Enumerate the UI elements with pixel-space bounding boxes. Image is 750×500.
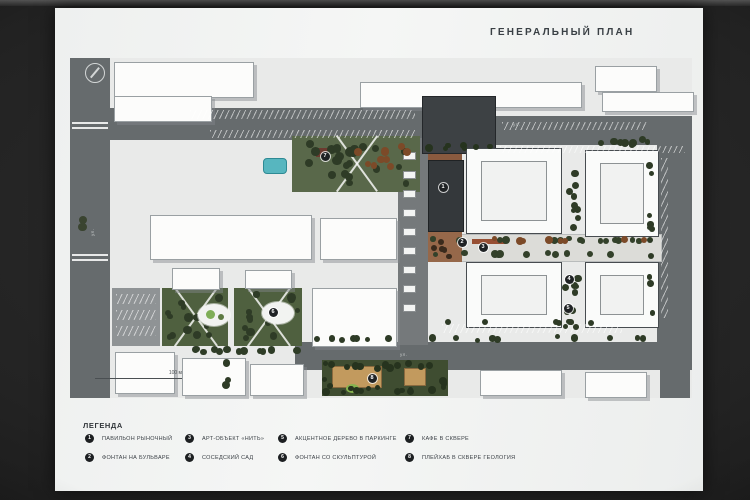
tree	[649, 226, 655, 232]
parking-garage-building	[422, 96, 496, 154]
legend-number-badge: 8	[405, 453, 414, 462]
tree	[571, 193, 578, 200]
context-building	[150, 215, 312, 260]
road-label-bottom: ул.	[400, 352, 408, 357]
tree	[382, 361, 390, 369]
tree	[580, 238, 585, 243]
tree	[453, 335, 459, 341]
screen-bezel-highlight	[0, 0, 750, 6]
tree	[446, 254, 451, 259]
tree	[383, 156, 390, 163]
scale-label: 100 м	[169, 370, 182, 376]
tree	[178, 300, 185, 307]
page-title: ГЕНЕРАЛЬНЫЙ ПЛАН	[490, 27, 634, 38]
legend-item-8: 8ПЛЕЙХАБ В СКВЕРЕ ГЕОЛОГИЯ	[405, 453, 515, 462]
tree	[570, 224, 577, 231]
courtyard	[600, 275, 644, 315]
tree	[430, 236, 436, 242]
legend-number-badge: 6	[278, 453, 287, 462]
legend-item-label: АКЦЕНТНОЕ ДЕРЕВО В ПАРКИНГЕ	[295, 436, 397, 442]
context-building	[320, 218, 397, 260]
parked-car	[403, 209, 416, 217]
tree	[648, 253, 654, 259]
tree	[350, 335, 357, 342]
map-marker-1: 1	[439, 183, 448, 192]
context-building	[602, 92, 694, 112]
tree	[268, 346, 276, 354]
tree	[215, 294, 222, 301]
context-building	[585, 372, 647, 398]
context-building	[245, 270, 292, 289]
tree	[418, 363, 424, 369]
tree	[306, 140, 314, 148]
crosswalk	[72, 122, 108, 129]
context-building	[595, 66, 657, 92]
legend-item-label: СОСЕДСКИЙ САД	[202, 455, 253, 461]
tree	[387, 163, 394, 170]
scale-bar: 100 м	[95, 370, 182, 379]
tree	[572, 182, 579, 189]
legend-number-badge: 4	[185, 453, 194, 462]
tree	[575, 215, 581, 221]
tree	[332, 156, 342, 166]
tree	[647, 280, 654, 287]
parked-car	[403, 304, 416, 312]
tree	[399, 388, 404, 393]
tree	[429, 334, 436, 341]
tree	[520, 238, 526, 244]
map-marker-6: 6	[269, 308, 278, 317]
tree	[247, 316, 254, 323]
map-marker-5: 5	[564, 304, 573, 313]
market-pavilion	[428, 160, 464, 232]
tree	[445, 143, 450, 148]
tree	[353, 387, 360, 394]
parked-car	[403, 190, 416, 198]
legend-item-7: 7КАФЕ В СКВЕРЕ	[405, 434, 469, 443]
tree	[552, 251, 559, 258]
tree	[646, 162, 653, 169]
legend-item-label: КАФЕ В СКВЕРЕ	[422, 436, 469, 442]
scale-line	[95, 378, 182, 379]
tree	[193, 331, 201, 339]
parked-car	[403, 228, 416, 236]
tree	[371, 162, 378, 169]
tree	[607, 335, 613, 341]
tree	[323, 361, 328, 366]
tree	[431, 245, 437, 251]
tree	[223, 346, 230, 353]
map-marker-2: 2	[458, 238, 467, 247]
legend-item-label: ФОНТАН НА БУЛЬВАРЕ	[102, 455, 170, 461]
parking-stalls	[661, 158, 668, 318]
context-building	[172, 268, 220, 290]
tree	[494, 336, 501, 343]
map-marker-4: 4	[565, 275, 574, 284]
tree	[647, 237, 653, 243]
tree	[327, 383, 333, 389]
tree	[403, 180, 409, 186]
tree	[607, 251, 614, 258]
tree	[473, 144, 479, 150]
legend-number-badge: 1	[85, 434, 94, 443]
development-block	[466, 148, 562, 234]
development-block	[466, 262, 562, 328]
parking-stalls	[210, 130, 415, 138]
legend-items: 1ПАВИЛЬОН РЫНОЧНЫЙ2ФОНТАН НА БУЛЬВАРЕ3АР…	[70, 418, 690, 480]
tree	[564, 250, 570, 256]
legend-number-badge: 7	[405, 434, 414, 443]
tree	[603, 238, 609, 244]
map-marker-8: 8	[368, 374, 377, 383]
parking-stalls	[116, 294, 156, 304]
tree	[640, 335, 647, 342]
tree	[571, 170, 579, 178]
tree	[408, 387, 413, 392]
tree	[612, 237, 618, 243]
tree	[200, 349, 206, 355]
context-building	[480, 370, 562, 396]
tree	[385, 335, 392, 342]
parked-car	[403, 171, 416, 179]
courtyard	[481, 161, 547, 221]
parking-stalls	[500, 146, 685, 153]
legend-item-label: АРТ-ОБЪЕКТ «НИТЬ»	[202, 436, 264, 442]
legend-item-2: 2ФОНТАН НА БУЛЬВАРЕ	[85, 453, 170, 462]
legend-number-badge: 2	[85, 453, 94, 462]
courtyard	[481, 275, 547, 315]
tree	[375, 385, 380, 390]
tree	[545, 236, 553, 244]
legend-number-badge: 3	[185, 434, 194, 443]
oval-lawn-mound	[206, 310, 215, 319]
map-marker-7: 7	[321, 152, 330, 161]
tree	[236, 348, 242, 354]
tree	[206, 332, 212, 338]
tree	[574, 275, 582, 283]
legend-number-badge: 5	[278, 434, 287, 443]
tree	[311, 147, 320, 156]
tree	[555, 334, 560, 339]
legend-item-3: 3АРТ-ОБЪЕКТ «НИТЬ»	[185, 434, 264, 443]
crosswalk	[72, 254, 108, 261]
right-street-road-south	[660, 368, 690, 398]
parked-car	[403, 247, 416, 255]
water-feature-pool	[263, 158, 287, 174]
legend-item-label: ФОНТАН СО СКУЛЬПТУРОЙ	[295, 455, 376, 461]
tree	[194, 346, 200, 352]
tree	[293, 347, 301, 355]
legend-item-4: 4СОСЕДСКИЙ САД	[185, 453, 253, 462]
legend-item-1: 1ПАВИЛЬОН РЫНОЧНЫЙ	[85, 434, 172, 443]
tree	[343, 162, 350, 169]
legend-item-5: 5АКЦЕНТНОЕ ДЕРЕВО В ПАРКИНГЕ	[278, 434, 397, 443]
tree	[571, 334, 579, 342]
playhub-surface-small	[404, 368, 426, 386]
tree	[650, 310, 655, 315]
masterplan-map: 100 м ул. ул. ул. 12345678	[70, 58, 692, 398]
tree	[211, 346, 218, 353]
courtyard	[600, 163, 644, 224]
legend-item-label: ПАВИЛЬОН РЫНОЧНЫЙ	[102, 436, 172, 442]
tree	[647, 274, 652, 279]
screen-photo: ГЕНЕРАЛЬНЫЙ ПЛАН	[0, 0, 750, 500]
legend-item-6: 6ФОНТАН СО СКУЛЬПТУРОЙ	[278, 453, 376, 462]
tree	[328, 171, 336, 179]
parked-car	[403, 285, 416, 293]
context-building	[114, 62, 254, 98]
presentation-slide: ГЕНЕРАЛЬНЫЙ ПЛАН	[55, 8, 703, 491]
tree	[184, 313, 193, 322]
tree	[183, 326, 192, 335]
parking-stalls	[116, 326, 156, 336]
tree	[167, 314, 173, 320]
tree	[572, 289, 578, 295]
oval-lawn-mound-small	[218, 314, 224, 320]
tree	[475, 338, 480, 343]
map-marker-3: 3	[479, 243, 488, 252]
parking-stalls	[442, 324, 622, 333]
context-building	[182, 358, 246, 396]
tree	[573, 324, 579, 330]
tree	[588, 320, 594, 326]
tree	[253, 291, 259, 297]
parking-stalls	[116, 310, 156, 320]
park-plaza-oval-east	[262, 302, 294, 324]
legend-item-label: ПЛЕЙХАБ В СКВЕРЕ ГЕОЛОГИЯ	[422, 455, 515, 461]
tree	[374, 365, 381, 372]
parked-car	[403, 266, 416, 274]
tree	[288, 297, 295, 304]
tree	[562, 284, 569, 291]
tree	[295, 308, 300, 313]
tree	[442, 247, 448, 253]
north-arrow-icon	[85, 63, 105, 83]
tree	[246, 309, 251, 314]
tree	[630, 237, 636, 243]
legend: ЛЕГЕНДА 1ПАВИЛЬОН РЫНОЧНЫЙ2ФОНТАН НА БУЛ…	[70, 418, 690, 480]
tree	[428, 386, 436, 394]
tree	[270, 332, 278, 340]
context-building	[250, 364, 304, 396]
tree	[571, 282, 578, 289]
tree	[372, 145, 379, 152]
tree	[629, 142, 635, 148]
tree	[461, 250, 467, 256]
road-label-top: ул.	[513, 122, 521, 127]
road-label-left: ул.	[90, 228, 95, 236]
development-block	[585, 262, 659, 328]
tree	[394, 362, 401, 369]
tree	[329, 335, 335, 341]
parking-stalls	[190, 110, 415, 119]
tree	[425, 144, 433, 152]
tree	[365, 337, 370, 342]
parking-stalls	[502, 122, 647, 130]
